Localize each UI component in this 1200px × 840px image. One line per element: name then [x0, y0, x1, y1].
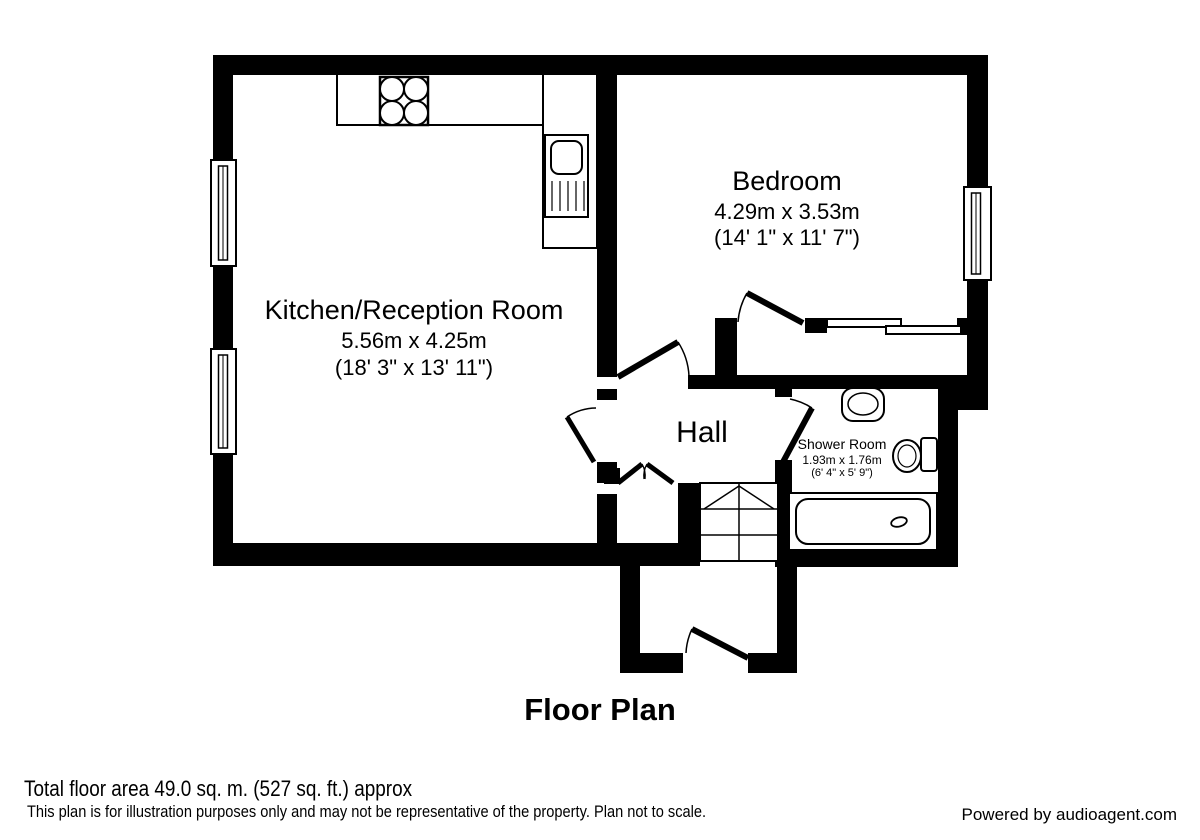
kitchen-room-dimensions-imperial: (18' 3" x 13' 11")	[335, 356, 493, 379]
bedroom-sliding-doors	[827, 319, 961, 334]
powered-by-credit: Powered by audioagent.com	[962, 806, 1177, 824]
sink-icon	[545, 135, 588, 217]
shower-room-dimensions-imperial: (6' 4" x 5' 9")	[811, 468, 873, 480]
kitchen-room-dimensions-metric: 5.56m x 4.25m	[341, 329, 487, 352]
wash-basin-icon	[842, 388, 884, 421]
shower-right-wall	[938, 385, 958, 567]
page-title: Floor Plan	[524, 694, 676, 727]
stairs-post-wall	[678, 483, 700, 563]
shower-left-post	[775, 385, 792, 397]
hall-label: Hall	[676, 417, 728, 449]
left-wall-middle	[213, 265, 233, 350]
bedroom-label: Bedroom	[732, 167, 842, 195]
walls	[213, 55, 988, 673]
counter-top-run	[337, 74, 543, 125]
kitchen-divider-wall-low	[597, 494, 617, 563]
bedroom-door	[738, 293, 803, 323]
toilet-icon	[893, 438, 937, 472]
bathtub-icon	[789, 493, 937, 550]
vestibule-right-wall	[777, 563, 797, 673]
kitchen-window-upper	[211, 160, 236, 266]
hob-icon	[380, 77, 428, 125]
bedroom-dimensions-imperial: (14' 1" x 11' 7")	[714, 226, 860, 249]
kitchen-lower-door	[567, 408, 596, 462]
bedroom-door-post	[805, 318, 827, 333]
shower-room-dimensions-metric: 1.93m x 1.76m	[802, 454, 881, 467]
left-wall-upper	[213, 55, 233, 162]
bedroom-window	[964, 187, 991, 280]
top-wall	[213, 55, 988, 75]
kitchen-divider-post	[597, 389, 617, 400]
se-corner-block	[955, 375, 988, 410]
kitchen-divider-wall-upper	[597, 75, 617, 377]
kitchen-hall-door	[618, 342, 689, 377]
total-floor-area-text: Total floor area 49.0 sq. m. (527 sq. ft…	[24, 777, 412, 800]
kitchen-fixtures	[337, 74, 597, 248]
bedroom-dimensions-metric: 4.29m x 3.53m	[714, 200, 860, 223]
stairs	[700, 483, 778, 561]
shower-room-label: Shower Room	[798, 437, 887, 452]
right-wall-upper	[967, 55, 988, 187]
floor-plan: Kitchen/Reception Room 5.56m x 4.25m (18…	[0, 0, 1200, 840]
front-door	[686, 629, 748, 658]
vestibule-bottom-wall-left	[620, 653, 683, 673]
kitchen-room-label: Kitchen/Reception Room	[265, 296, 564, 324]
disclaimer-text: This plan is for illustration purposes o…	[27, 803, 706, 821]
hall-bifold-door	[618, 464, 673, 483]
wardrobe-stub-wall	[715, 318, 737, 388]
kitchen-bottom-wall	[213, 543, 700, 566]
kitchen-window-lower	[211, 349, 236, 454]
